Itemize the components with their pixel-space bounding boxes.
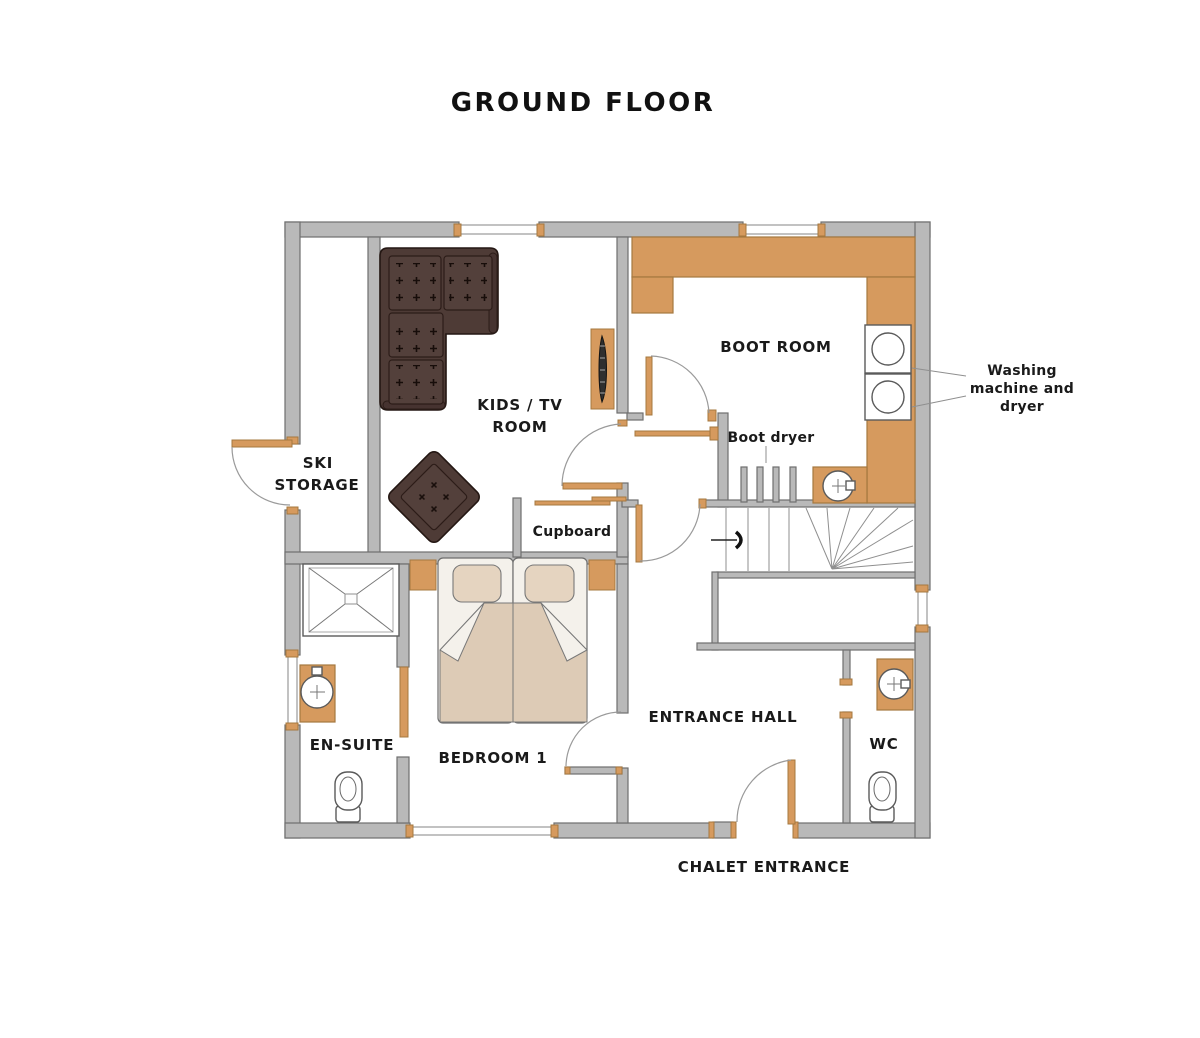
window-bedroom <box>406 825 558 837</box>
label-chalet-entrance: CHALET ENTRANCE <box>678 858 850 876</box>
window-kids-room <box>454 224 544 236</box>
dryer <box>865 374 911 420</box>
window-boot-room <box>739 224 825 236</box>
label-boot-room: BOOT ROOM <box>720 338 832 356</box>
ensuite-toilet <box>335 772 362 822</box>
nightstand <box>410 560 436 590</box>
label-bedroom-1: BEDROOM 1 <box>439 749 548 767</box>
label-cupboard: Cupboard <box>533 524 612 540</box>
boot-room-fittings <box>632 237 915 503</box>
door-wc <box>840 679 852 718</box>
label-washing-machine: dryer <box>1000 399 1044 415</box>
label-entrance-hall: ENTRANCE HALL <box>649 708 798 726</box>
cupboard-sliding-doors <box>535 497 626 505</box>
label-boot-dryer: Boot dryer <box>728 430 815 446</box>
label-washing-machine: Washing <box>987 363 1057 379</box>
ensuite-fixtures <box>300 564 399 822</box>
pillow <box>525 565 574 602</box>
boot-room-sink <box>813 467 867 503</box>
boot-room-bench <box>632 237 915 277</box>
page-title: GROUND FLOOR <box>451 88 716 118</box>
washing-machine <box>865 325 911 373</box>
boot-dryer <box>741 467 796 502</box>
window-ensuite <box>286 650 298 730</box>
shower <box>303 564 399 636</box>
bedroom-furniture <box>410 558 615 723</box>
label-washing-machine: machine and <box>970 381 1074 397</box>
tv <box>591 329 614 409</box>
door-ensuite-sliding <box>400 667 408 737</box>
window-landing <box>916 585 928 632</box>
wc-washbasin <box>877 659 913 710</box>
nightstand <box>589 560 615 590</box>
wc-toilet <box>869 772 896 822</box>
floor-plan: GROUND FLOOR SKI STORAGE KIDS / TV ROOM … <box>0 0 1200 1038</box>
sectional-sofa <box>380 248 498 410</box>
label-kids-tv-room: ROOM <box>492 418 547 436</box>
label-wc: WC <box>869 735 898 753</box>
label-ski-storage: STORAGE <box>274 476 359 494</box>
ensuite-washbasin <box>300 665 335 722</box>
staircase <box>711 508 913 571</box>
double-bed <box>438 558 587 723</box>
pillow <box>453 565 501 602</box>
label-kids-tv-room: KIDS / TV <box>477 396 562 414</box>
ottoman <box>386 449 482 545</box>
label-ensuite: EN-SUITE <box>310 736 394 754</box>
label-ski-storage: SKI <box>303 454 333 472</box>
boot-room-bench <box>632 277 673 313</box>
labels: GROUND FLOOR SKI STORAGE KIDS / TV ROOM … <box>274 88 1074 876</box>
door-stairs <box>636 499 706 562</box>
door-kids-room <box>562 420 627 489</box>
door-boot-room <box>635 356 718 440</box>
